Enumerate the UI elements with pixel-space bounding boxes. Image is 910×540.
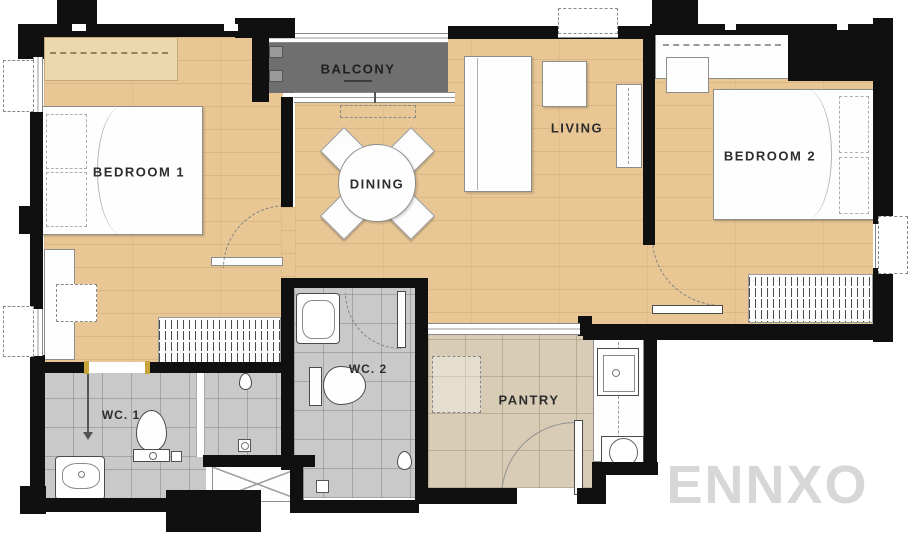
window — [72, 24, 86, 31]
wall — [290, 455, 303, 513]
bedroom1-wardrobe-rail — [50, 52, 168, 54]
ac-unit — [878, 216, 908, 274]
wc2-shower-head-icon — [397, 451, 412, 470]
living-sofa-back — [466, 58, 478, 190]
wc1-sink-drain — [78, 471, 85, 478]
bedroom2-nightstand — [666, 57, 709, 93]
ac-unit — [3, 60, 34, 112]
wc2-label: WC. 2 — [349, 362, 387, 376]
wall — [30, 111, 43, 210]
balcony-label: BALCONY — [321, 62, 396, 77]
wc2-toilet-tank-icon — [309, 367, 322, 406]
floor-plan: BEDROOM 1 BALCONY DINING LIVING BEDROOM … — [0, 0, 910, 540]
wall — [30, 232, 43, 311]
wc1-sliding-door-track — [87, 366, 89, 432]
wall — [578, 316, 592, 336]
wc1-toilet-button — [149, 452, 157, 460]
structural-column — [788, 33, 873, 81]
wc1-door-arrow-icon — [83, 432, 93, 440]
wc1-window — [33, 309, 43, 356]
dining-rug — [340, 105, 416, 118]
bedroom1-pillow — [46, 114, 87, 169]
living-label: LIVING — [551, 121, 603, 136]
living-side-table — [542, 61, 587, 107]
ac-unit — [558, 8, 618, 34]
bedroom2-mat — [748, 274, 873, 323]
pantry-table — [432, 356, 481, 413]
wall — [643, 33, 655, 245]
window — [725, 24, 736, 30]
ac-unit — [3, 306, 34, 357]
balcony-planter — [269, 70, 283, 82]
wall — [19, 206, 43, 234]
window — [837, 24, 848, 30]
dining-label: DINING — [350, 177, 405, 192]
bedroom1-chair — [56, 284, 97, 322]
bedroom1-label: BEDROOM 1 — [93, 165, 185, 180]
bedroom2-label: BEDROOM 2 — [724, 149, 816, 164]
wc1-toilet-bowl-icon — [136, 410, 167, 451]
wall — [18, 24, 44, 59]
bedroom1-pillow — [46, 172, 87, 227]
pantry-faucet-dot — [612, 369, 620, 377]
balcony-railing — [268, 33, 448, 43]
pantry-door-leaf — [574, 420, 583, 495]
wc2-drain-icon — [316, 480, 329, 493]
pantry-label: PANTRY — [499, 393, 560, 408]
door-frame — [84, 361, 89, 374]
watermark: ENNXO — [655, 456, 880, 514]
wc2-sink-basin — [302, 300, 335, 339]
wall — [166, 490, 261, 532]
pantry-window — [428, 323, 580, 335]
wall — [644, 338, 657, 466]
wall — [148, 362, 285, 373]
wall — [281, 278, 294, 470]
wall — [32, 362, 86, 373]
window — [224, 24, 238, 31]
wc1-bin — [171, 451, 182, 462]
wall — [583, 324, 893, 340]
wall — [303, 500, 419, 513]
wall — [592, 472, 606, 492]
wall — [281, 278, 423, 288]
bedroom2-pillow — [839, 96, 869, 153]
shower-drain-hole — [241, 442, 249, 450]
wall — [281, 97, 293, 207]
wall — [448, 26, 652, 39]
bedroom2-wardrobe-rail — [663, 44, 781, 46]
wc1-glass-partition — [196, 373, 205, 457]
sliding-door-divider — [374, 92, 376, 103]
living-tv-centerline — [628, 88, 629, 164]
wall — [415, 278, 428, 504]
wc2-door-leaf — [397, 291, 406, 348]
bedroom1-window — [33, 57, 43, 112]
wall — [30, 355, 45, 502]
shower-mixer-icon — [239, 373, 252, 390]
balcony-planter — [269, 46, 283, 58]
balcony-label-underline — [344, 80, 372, 82]
wall — [57, 0, 97, 26]
wall — [252, 28, 269, 102]
wall — [415, 488, 517, 504]
door-frame — [145, 361, 150, 374]
wall — [873, 18, 893, 224]
bedroom2-door-leaf — [652, 305, 723, 314]
bedroom1-dresser — [158, 317, 281, 363]
bedroom2-pillow — [839, 157, 869, 214]
bedroom1-wardrobe — [44, 37, 178, 81]
wc1-label: WC. 1 — [102, 408, 140, 422]
living-tv-console — [616, 84, 642, 168]
